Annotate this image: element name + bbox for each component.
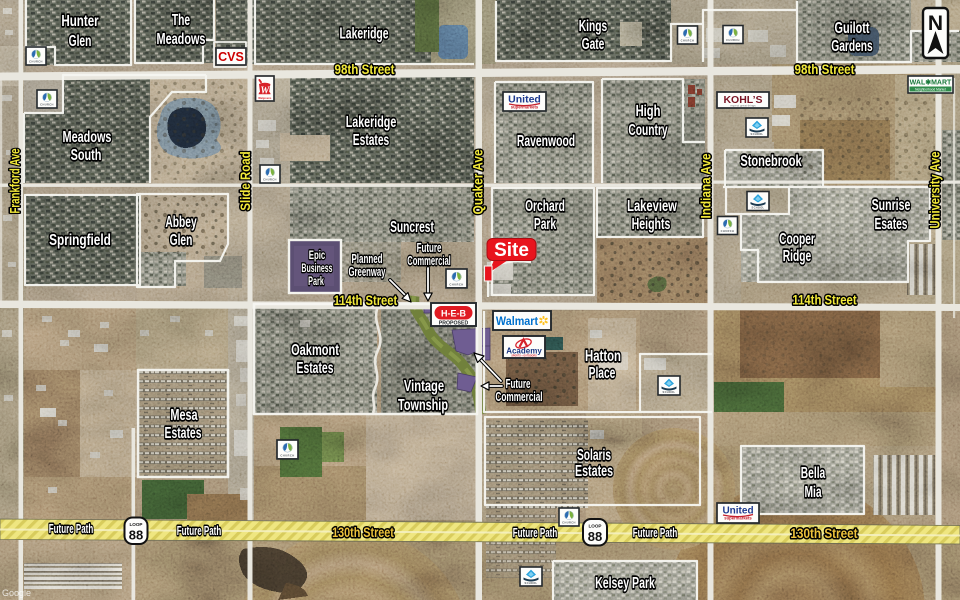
svg-text:Lakeview: Lakeview [627, 196, 677, 215]
svg-text:130th Street: 130th Street [790, 526, 858, 541]
svg-text:Mesa: Mesa [170, 406, 198, 424]
svg-text:Country: Country [628, 121, 668, 139]
svg-text:Walmart: Walmart [496, 316, 538, 329]
svg-text:Gate: Gate [582, 35, 605, 53]
svg-text:Bella: Bella [801, 464, 826, 482]
svg-text:W: W [260, 86, 270, 97]
svg-text:Ridge: Ridge [783, 247, 811, 265]
svg-text:114th Street: 114th Street [792, 293, 856, 308]
svg-text:Solaris: Solaris [577, 446, 611, 464]
svg-text:Heights: Heights [632, 215, 671, 233]
svg-text:Park: Park [308, 275, 324, 288]
svg-text:Estates: Estates [165, 424, 202, 442]
svg-text:expect great things: expect great things [730, 104, 756, 108]
svg-text:LOOP: LOOP [129, 522, 142, 527]
svg-text:Indiana Ave: Indiana Ave [699, 154, 714, 219]
svg-text:Park: Park [534, 215, 557, 233]
svg-text:Estates: Estates [575, 462, 613, 480]
svg-text:supermarkets: supermarkets [724, 516, 752, 521]
svg-text:88: 88 [129, 528, 143, 543]
svg-text:LOOP: LOOP [588, 523, 601, 528]
svg-text:Kings: Kings [579, 17, 607, 35]
svg-text:Sunrise: Sunrise [872, 196, 911, 214]
svg-text:88: 88 [588, 529, 602, 544]
svg-text:Academy: Academy [506, 347, 542, 356]
svg-text:SPORTS + OUTDOORS: SPORTS + OUTDOORS [511, 355, 537, 357]
svg-text:Stonebrook: Stonebrook [740, 152, 802, 169]
svg-text:Meadows: Meadows [157, 30, 206, 48]
svg-text:Mia: Mia [804, 483, 821, 501]
svg-text:Epic: Epic [309, 250, 326, 263]
svg-text:supermarkets: supermarkets [511, 105, 539, 110]
svg-text:Neighborhood Market: Neighborhood Market [915, 88, 946, 92]
svg-text:Slide Road: Slide Road [238, 151, 253, 210]
svg-text:CVS: CVS [218, 50, 244, 64]
svg-text:H-E-B: H-E-B [441, 309, 466, 319]
svg-text:Esates: Esates [875, 215, 908, 233]
svg-text:Suncrest: Suncrest [390, 218, 434, 236]
svg-text:Quaker Ave: Quaker Ave [470, 149, 486, 214]
svg-text:PROPOSED: PROPOSED [439, 321, 469, 327]
svg-text:Orchard: Orchard [525, 197, 565, 215]
svg-text:Future Path: Future Path [177, 525, 221, 538]
svg-text:Glen: Glen [170, 231, 193, 249]
svg-text:South: South [71, 146, 102, 164]
svg-text:Google: Google [2, 588, 31, 598]
svg-text:University Ave: University Ave [928, 151, 943, 228]
svg-text:Abbey: Abbey [165, 213, 197, 231]
svg-text:Ravenwood: Ravenwood [517, 132, 575, 150]
svg-text:Lakeridge: Lakeridge [339, 24, 388, 42]
svg-text:Hunter: Hunter [61, 11, 99, 29]
svg-text:Planned: Planned [351, 253, 382, 266]
svg-text:Meadows: Meadows [63, 128, 112, 146]
svg-text:Township: Township [398, 396, 448, 414]
svg-text:Kelsey Park: Kelsey Park [595, 574, 655, 592]
svg-text:Glen: Glen [69, 32, 92, 50]
svg-text:The: The [172, 11, 190, 29]
svg-text:130th Street: 130th Street [332, 525, 394, 540]
svg-text:High: High [636, 101, 661, 120]
svg-text:Vintage: Vintage [404, 376, 444, 395]
svg-text:Hatton: Hatton [585, 346, 621, 364]
svg-text:Future Path: Future Path [633, 527, 677, 540]
svg-text:Future Path: Future Path [513, 527, 557, 540]
svg-text:Future: Future [417, 242, 442, 255]
svg-text:Estates: Estates [297, 359, 334, 377]
svg-text:114th Street: 114th Street [334, 293, 397, 308]
svg-text:Gardens: Gardens [831, 37, 873, 55]
svg-text:Business: Business [301, 262, 332, 275]
svg-text:Frankford Ave: Frankford Ave [8, 148, 23, 213]
svg-text:Future Path: Future Path [49, 523, 93, 536]
svg-text:Cooper: Cooper [779, 230, 815, 248]
svg-text:98th Street: 98th Street [795, 62, 856, 77]
svg-text:Site: Site [494, 240, 529, 261]
svg-text:Springfield: Springfield [49, 230, 111, 248]
svg-text:Walgreens: Walgreens [258, 96, 272, 100]
svg-text:Guilott: Guilott [834, 19, 869, 37]
svg-text:Estates: Estates [353, 131, 389, 149]
svg-text:Commercial: Commercial [495, 390, 542, 404]
svg-text:WAL✱MART: WAL✱MART [910, 79, 952, 87]
svg-text:Place: Place [589, 364, 616, 382]
svg-text:98th Street: 98th Street [335, 62, 396, 77]
svg-text:Greenway: Greenway [349, 266, 386, 279]
svg-text:Lakeridge: Lakeridge [346, 113, 397, 131]
svg-text:Oakmont: Oakmont [291, 341, 339, 358]
